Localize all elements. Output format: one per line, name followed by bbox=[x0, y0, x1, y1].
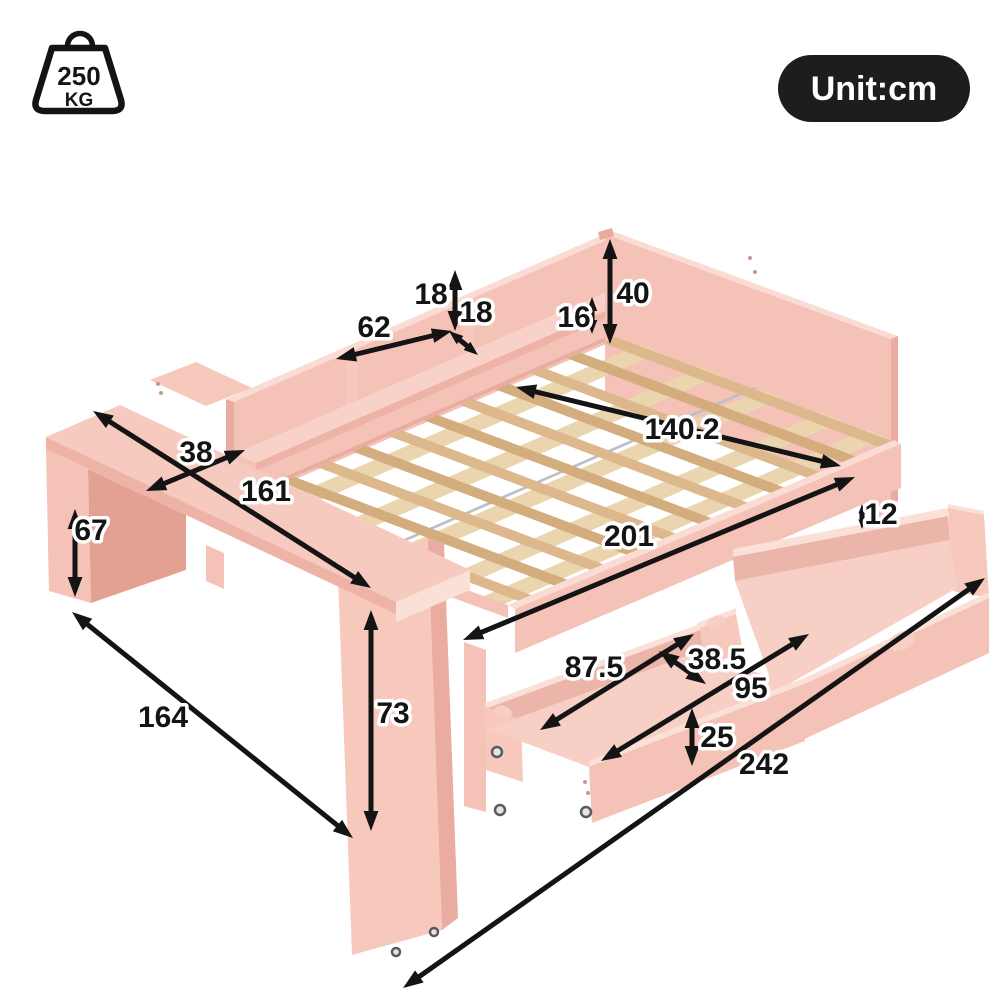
dimension-label-drawer-gap: 12 bbox=[864, 498, 897, 531]
unit-badge: Unit:cm bbox=[778, 55, 970, 122]
dimension-label-total-length: 242 bbox=[739, 748, 789, 781]
dimension-label-headboard-height: 40 bbox=[616, 277, 649, 310]
unit-badge-label: Unit:cm bbox=[811, 70, 938, 108]
dimension-label-side-rail-height: 16 bbox=[557, 301, 590, 334]
dimension-label-drawer-left-length: 87.5 bbox=[565, 651, 623, 684]
dimension-label-desk-height: 67 bbox=[74, 514, 107, 547]
dimension-label-bed-length: 201 bbox=[604, 520, 654, 553]
dimension-label-shelf-height: 18 bbox=[414, 278, 447, 311]
dimension-label-desk-length: 161 bbox=[241, 475, 291, 508]
dimension-label-shelf-depth: 18 bbox=[459, 296, 492, 329]
weight-capacity-icon: 250 KG bbox=[35, 34, 121, 112]
dimension-side-rail-height: 16 bbox=[557, 297, 597, 334]
product-dimension-diagram: 1818621640140.22013816167164731287.538.5… bbox=[0, 0, 1000, 1000]
weight-unit: KG bbox=[65, 90, 94, 111]
bed-illustration: 1818621640140.22013816167164731287.538.5… bbox=[0, 0, 1000, 1000]
dimension-label-desk-depth: 38 bbox=[179, 436, 212, 469]
dimension-label-shelf-width: 62 bbox=[357, 311, 390, 344]
front-left-leg bbox=[464, 642, 486, 812]
dimension-label-bed-width: 140.2 bbox=[644, 413, 719, 446]
drawer-left bbox=[484, 624, 805, 823]
dimension-drawer-gap: 12 bbox=[858, 498, 897, 531]
dimension-floor-depth: 164 bbox=[72, 612, 353, 838]
dimension-label-floor-depth: 164 bbox=[138, 701, 188, 734]
weight-value: 250 bbox=[57, 61, 100, 91]
dimension-label-foot-panel-height: 73 bbox=[376, 697, 409, 730]
desk-leg bbox=[206, 545, 224, 589]
dimension-label-drawer-right-length: 95 bbox=[734, 672, 767, 705]
dimension-label-drawer-depth: 25 bbox=[700, 721, 733, 754]
